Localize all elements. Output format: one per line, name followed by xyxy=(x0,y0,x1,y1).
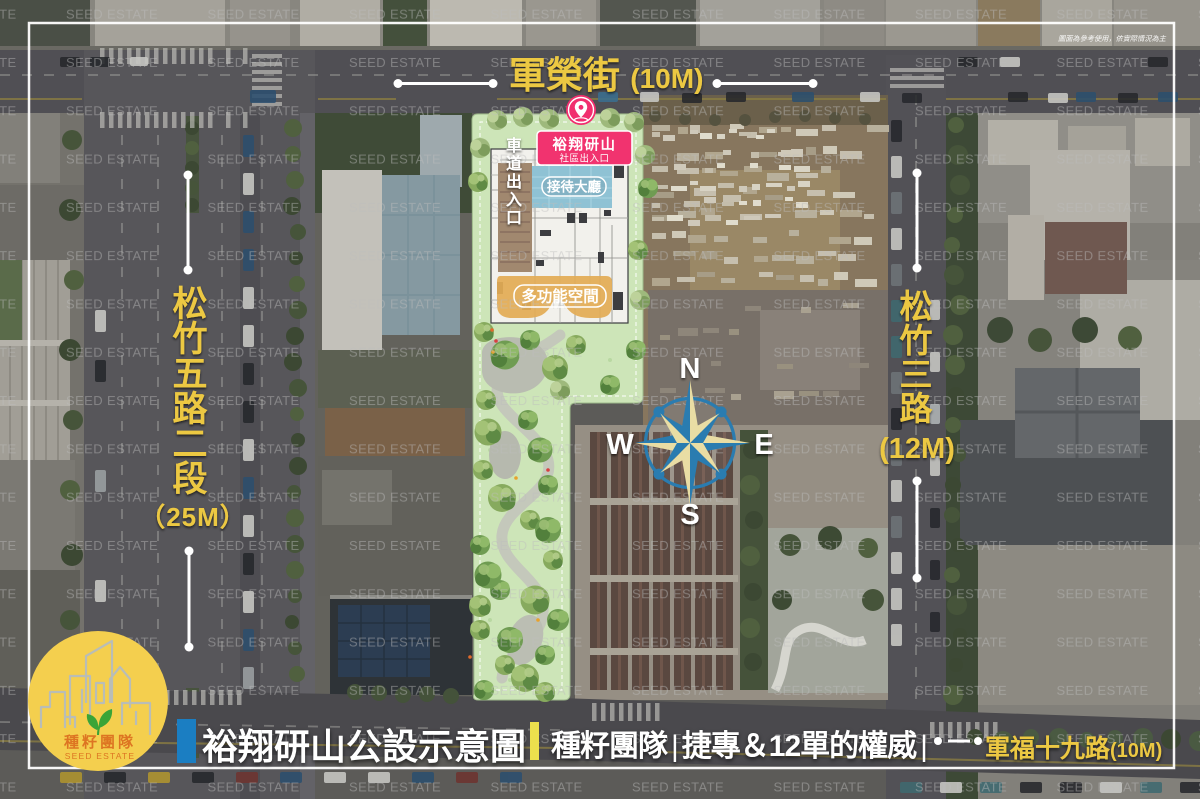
svg-text:裕翔研山: 裕翔研山 xyxy=(552,136,617,154)
svg-text:五: 五 xyxy=(172,355,207,394)
svg-text:松: 松 xyxy=(900,288,933,325)
svg-text:竹: 竹 xyxy=(172,320,207,359)
svg-text:車: 車 xyxy=(506,136,522,155)
svg-text:接待大廳: 接待大廳 xyxy=(547,179,601,195)
svg-text:（25M）: （25M） xyxy=(139,502,247,532)
svg-text:三: 三 xyxy=(900,356,933,393)
svg-text:S: S xyxy=(680,499,699,531)
svg-text:E: E xyxy=(754,429,773,461)
svg-text:竹: 竹 xyxy=(900,322,933,359)
svg-text:入: 入 xyxy=(506,191,522,209)
svg-text:多功能空間: 多功能空間 xyxy=(521,287,599,306)
svg-text:道: 道 xyxy=(506,154,522,173)
svg-text:N: N xyxy=(680,353,701,385)
svg-text:口: 口 xyxy=(506,210,522,227)
svg-text:段: 段 xyxy=(172,459,207,499)
svg-text:松: 松 xyxy=(172,285,207,324)
svg-text:(12M): (12M) xyxy=(879,433,955,465)
svg-text:社區出入口: 社區出入口 xyxy=(559,153,609,165)
svg-text:出: 出 xyxy=(506,172,522,191)
svg-text:二: 二 xyxy=(172,425,207,464)
svg-text:路: 路 xyxy=(900,390,934,427)
svg-text:W: W xyxy=(606,429,634,461)
svg-text:軍榮街 (10M): 軍榮街 (10M) xyxy=(509,55,703,96)
svg-text:圖面為參考使用，依實際情況為主: 圖面為參考使用，依實際情況為主 xyxy=(1058,34,1167,43)
svg-text:路: 路 xyxy=(172,390,208,429)
